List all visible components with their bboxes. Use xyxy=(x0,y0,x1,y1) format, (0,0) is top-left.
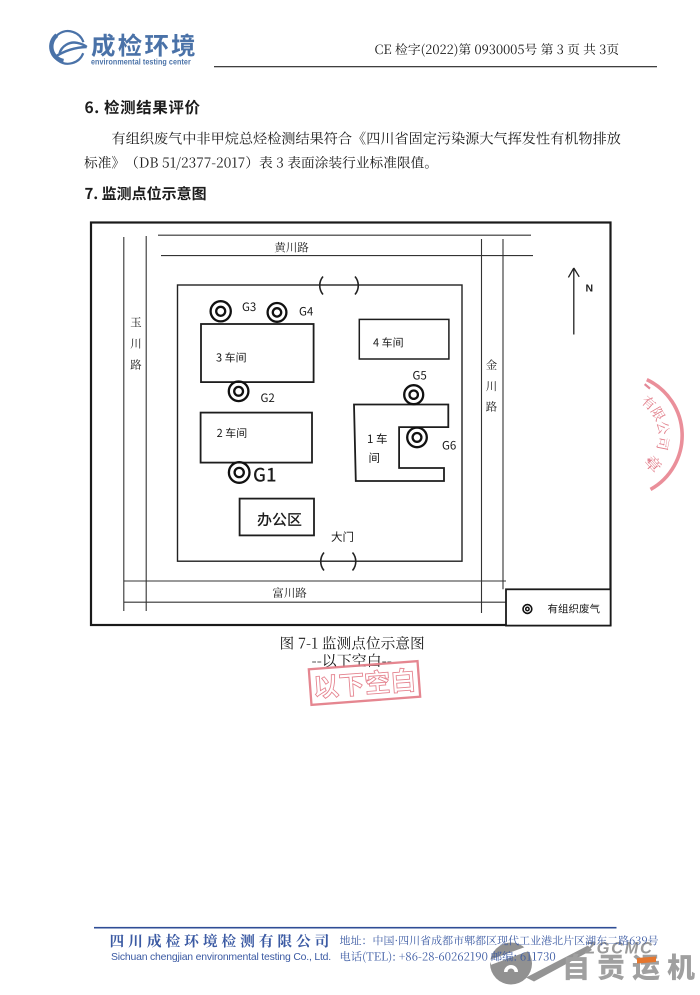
svg-text:N: N xyxy=(586,283,594,295)
svg-text:environmental testing center: environmental testing center xyxy=(91,57,191,67)
svg-text:Sichuan chengjian environmenta: Sichuan chengjian environmental testing … xyxy=(111,952,331,963)
